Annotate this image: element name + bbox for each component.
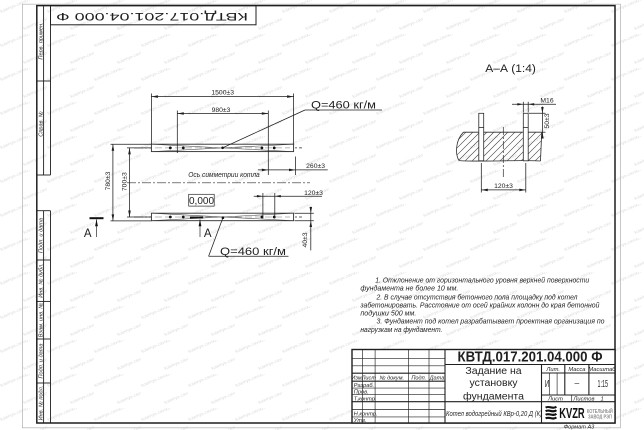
svg-text:нагрузкам на фундамент.: нагрузкам на фундамент.	[360, 325, 442, 334]
svg-text:Подп. и дата: Подп. и дата	[38, 343, 44, 378]
svg-text:ЗАВОД РЭП: ЗАВОД РЭП	[588, 415, 612, 421]
svg-text:–: –	[575, 378, 580, 388]
svg-text:50±3: 50±3	[544, 113, 551, 128]
svg-text:Подп. и дата: Подп. и дата	[38, 218, 44, 253]
svg-text:фундамента: фундамента	[463, 390, 524, 402]
svg-text:Лист: Лист	[547, 397, 563, 403]
svg-text:Формат А3: Формат А3	[564, 425, 595, 430]
svg-text:Справ. №: Справ. №	[38, 111, 44, 136]
svg-text:980±3: 980±3	[212, 107, 231, 114]
svg-text:А: А	[204, 228, 212, 240]
svg-text:Котел водогрейный КВр-0,20 Д (: Котел водогрейный КВр-0,20 Д (К)	[446, 410, 542, 418]
svg-text:Дата: Дата	[429, 376, 445, 382]
svg-text:Взам. инв. №: Взам. инв. №	[38, 303, 44, 338]
svg-text:КОТЕЛЬНЫЙ: КОТЕЛЬНЫЙ	[587, 407, 613, 415]
svg-text:КВТД.017.201.04.000 Ф: КВТД.017.201.04.000 Ф	[458, 349, 603, 366]
svg-text:120±3: 120±3	[304, 190, 323, 197]
svg-text:№ докум.: № докум.	[379, 376, 404, 382]
svg-text:фундамента не более 10 мм.: фундамента не более 10 мм.	[360, 284, 458, 293]
svg-text:Задание на: Задание на	[465, 365, 521, 377]
svg-text:Инв. № дубл.: Инв. № дубл.	[38, 263, 44, 297]
svg-text:А: А	[84, 228, 92, 240]
svg-text:Разраб.: Разраб.	[354, 383, 374, 389]
svg-text:1500±3: 1500±3	[211, 90, 234, 97]
svg-text:Q=460 кг/м: Q=460 кг/м	[220, 246, 286, 258]
svg-text:Лист: Лист	[361, 376, 377, 382]
svg-text:А–А (1:4): А–А (1:4)	[485, 63, 536, 75]
svg-text:установку: установку	[469, 377, 518, 389]
svg-text:0,000: 0,000	[189, 196, 214, 207]
svg-text:260±3: 260±3	[306, 163, 325, 170]
svg-text:Пров.: Пров.	[354, 390, 369, 396]
svg-text:40±3: 40±3	[302, 232, 309, 247]
svg-text:120±3: 120±3	[494, 183, 513, 190]
svg-text:КВТД.017.201.04.000 Ф: КВТД.017.201.04.000 Ф	[56, 10, 248, 22]
svg-text:Т.контр.: Т.контр.	[354, 397, 377, 403]
svg-text:Инв. № подл.: Инв. № подл.	[38, 386, 44, 421]
svg-text:Масса: Масса	[568, 367, 586, 373]
svg-text:Q=460 кг/м: Q=460 кг/м	[311, 100, 376, 112]
svg-text:Листов: Листов	[572, 397, 594, 403]
svg-text:1: 1	[601, 397, 604, 403]
svg-text:Перв. примен.: Перв. примен.	[38, 22, 44, 59]
svg-text:Н.контр.: Н.контр.	[354, 412, 378, 418]
svg-text:Ось симметрии котла: Ось симметрии котла	[188, 170, 260, 179]
svg-text:И: И	[545, 378, 550, 390]
svg-text:1:15: 1:15	[597, 379, 608, 390]
svg-text:Лит.: Лит.	[545, 367, 560, 373]
svg-text:700±3: 700±3	[122, 172, 129, 191]
svg-text:Подп.: Подп.	[411, 376, 426, 382]
svg-text:KVZR: KVZR	[559, 406, 585, 422]
svg-text:М16: М16	[540, 98, 553, 105]
svg-text:Масштаб: Масштаб	[588, 367, 616, 373]
svg-text:780±3: 780±3	[105, 171, 112, 190]
svg-text:Утв.: Утв.	[353, 418, 367, 424]
